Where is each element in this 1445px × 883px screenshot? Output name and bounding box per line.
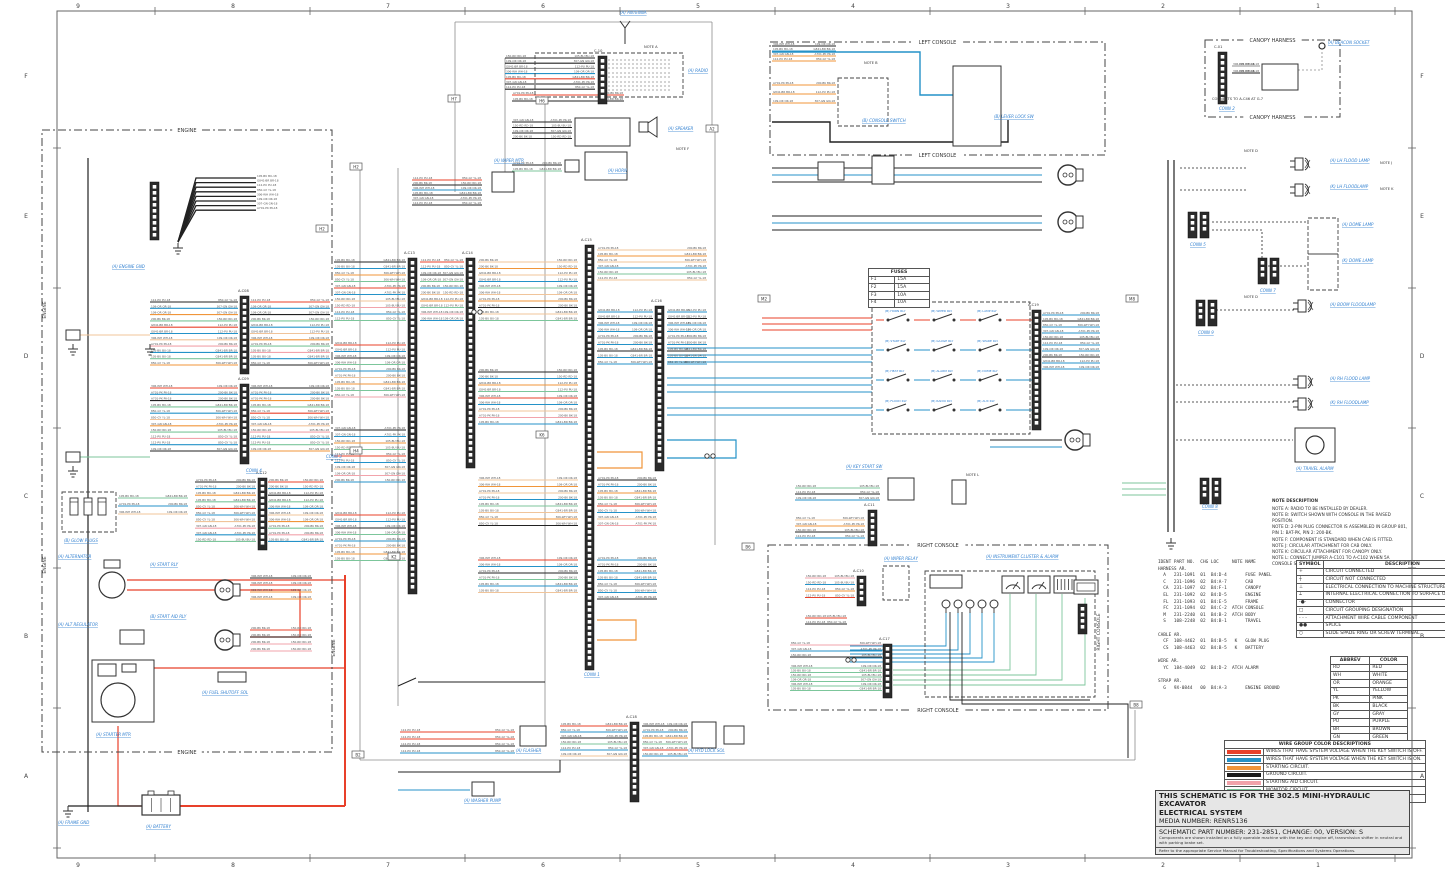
component-link[interactable]: CONN 2 bbox=[1219, 106, 1235, 111]
wire-label: 105-BU BU-18 bbox=[479, 420, 499, 424]
component-link[interactable]: (K) DOME LAMP bbox=[1342, 258, 1374, 263]
connector-pin bbox=[588, 524, 592, 528]
connector-pin bbox=[658, 345, 662, 349]
connector-pin bbox=[1191, 215, 1195, 219]
component-link[interactable]: (A) WIPER MTR bbox=[494, 158, 524, 163]
fuse-terminal bbox=[907, 319, 910, 322]
wire-label: 105-BU BU-18 bbox=[834, 581, 854, 585]
connector-pin bbox=[411, 567, 415, 571]
title-note-1: Components are shown installed on a full… bbox=[1159, 836, 1406, 846]
zone-tag-label: M2 bbox=[761, 297, 767, 302]
connector-pin bbox=[588, 596, 592, 600]
connector-pin bbox=[153, 209, 157, 213]
component-link[interactable]: (A) FUEL SHUTOFF SOL bbox=[202, 690, 248, 695]
wire-label: 200-BK BK-18 bbox=[558, 576, 577, 580]
wire-label: 200-BK BK-18 bbox=[251, 317, 270, 321]
wire-label: 150-RD RD-18 bbox=[557, 375, 577, 379]
wire-label: 150-RD RD-18 bbox=[806, 574, 826, 578]
wire-label: G841-BR BR-18 bbox=[1078, 317, 1100, 321]
connector-pin bbox=[411, 339, 415, 343]
ruler-number-top: 9 bbox=[76, 3, 80, 10]
wire-label: 307-GN GN-18 bbox=[335, 291, 356, 295]
connector-pin bbox=[1211, 309, 1215, 313]
wire-label: 307-GN GN-18 bbox=[335, 433, 356, 437]
indicator-lamp bbox=[966, 600, 974, 608]
connector-pin bbox=[658, 447, 662, 451]
wire-label: 850-GY YL-18 bbox=[575, 85, 594, 89]
glow-plug-cylinder bbox=[84, 498, 92, 515]
wire-label: 109-OR OR-18 bbox=[773, 99, 793, 103]
note-item: NOTE B: SWITCH SHOWN WITH CONSOLE IN THE… bbox=[1272, 512, 1410, 524]
connector-pin bbox=[411, 333, 415, 337]
wire-label: 105-BU BU-18 bbox=[598, 489, 618, 493]
wire-label: A701-PK PK-18 bbox=[335, 537, 356, 541]
component-link[interactable]: (A) WIPER RELAY bbox=[884, 556, 919, 561]
component-link[interactable]: (A) LH FLOOD LAMP bbox=[1330, 158, 1370, 163]
ruler-letter-right: E bbox=[1420, 213, 1424, 220]
component-link[interactable]: (A) ANTENNA bbox=[620, 10, 647, 15]
wire-label: 150-RD RD-18 bbox=[461, 181, 481, 185]
connector-pin bbox=[261, 511, 265, 515]
connector-pin bbox=[588, 518, 592, 522]
component-box bbox=[888, 478, 914, 500]
component-box bbox=[692, 722, 716, 748]
wire-label: G841-BR BR-18 bbox=[308, 348, 330, 352]
component-link[interactable]: (K) RH FLOODLAMP bbox=[1330, 400, 1369, 405]
wire-label: 200-BK BK-18 bbox=[386, 544, 405, 548]
wire-color-swatch bbox=[1227, 750, 1261, 754]
wire-label: G841-BR BR-18 bbox=[685, 354, 707, 358]
wire-label: 850-GY YL-18 bbox=[598, 582, 617, 586]
table-cell: SLIDE SPADE RING OR SCREW TERMINAL bbox=[1323, 630, 1445, 638]
connector-pin bbox=[588, 362, 592, 366]
wire-label: 112-PU PU-18 bbox=[310, 323, 329, 327]
component-box bbox=[1262, 64, 1298, 90]
wire-label: 307-GN GN-18 bbox=[309, 447, 330, 451]
component-link[interactable]: CONN 1 bbox=[584, 672, 600, 677]
component-link[interactable]: (A) BOOM FLOODLAMP bbox=[1330, 302, 1376, 307]
connector-pin bbox=[1081, 607, 1085, 611]
component-link[interactable]: (B) START AID RLY bbox=[150, 614, 187, 619]
component-link[interactable]: (A) ALT REGULATOR bbox=[58, 622, 98, 627]
wire-label: 850-GY YL-18 bbox=[218, 441, 237, 445]
ruler-number-top: 6 bbox=[541, 3, 545, 10]
wire-label: 200-BK BK-18 bbox=[479, 265, 498, 269]
wire-label: 307-GN GN-18 bbox=[815, 99, 836, 103]
component-link[interactable]: (A) STARTER MTR bbox=[96, 732, 131, 737]
wire-label: 306-WH WH-18 bbox=[384, 393, 406, 397]
connector-pin bbox=[1081, 625, 1085, 629]
connector-flange bbox=[1076, 216, 1083, 228]
wire-label: 850-GY YL-18 bbox=[1043, 323, 1062, 327]
wire-label: 109-OR OR-18 bbox=[385, 361, 405, 365]
wire-label: A701-PK PK-18 bbox=[861, 647, 882, 651]
table-cell: GRAY bbox=[1370, 711, 1408, 719]
connector-flange bbox=[233, 584, 240, 596]
connector-pin bbox=[871, 519, 875, 523]
wire-label: 105-BU BU-18 bbox=[385, 446, 405, 450]
component-link[interactable]: (K) LH FLOODLAMP bbox=[1330, 184, 1369, 189]
table-cell: ⊥ bbox=[1297, 584, 1324, 592]
wire-label: 105-BU BU-18 bbox=[257, 174, 277, 178]
component-link[interactable]: (A) INSTRUMENT CLUSTER & ALARM bbox=[986, 554, 1059, 559]
fuse-name: (B) HORN RLY bbox=[885, 309, 906, 313]
component-link[interactable]: (A) ALTERNATOR bbox=[58, 554, 92, 559]
wire-label: 850-GY YL-18 bbox=[386, 459, 405, 463]
wire-label: A701-PK PK-18 bbox=[385, 426, 406, 430]
wire-label: 112-PU PU-18 bbox=[444, 304, 463, 308]
connector-pin bbox=[658, 363, 662, 367]
connector-pin bbox=[153, 227, 157, 231]
wire-label: G841-BR BR-18 bbox=[421, 304, 443, 308]
connector-pin bbox=[633, 755, 637, 759]
wire-label: 109-OR OR-18 bbox=[557, 291, 577, 295]
wire-label: 850-GY YL-18 bbox=[827, 620, 846, 624]
component-link[interactable]: (A) SPEAKER bbox=[668, 126, 693, 131]
wire-label: G841-BR BR-18 bbox=[251, 330, 273, 334]
lamp-plug bbox=[1298, 376, 1306, 388]
wire-label: 112-PU PU-18 bbox=[251, 441, 270, 445]
wire-label: 200-BK BK-18 bbox=[816, 81, 835, 85]
region-label: LEFT CONSOLE bbox=[919, 40, 957, 46]
connector-pin bbox=[411, 357, 415, 361]
component-link[interactable]: (A) BEACON SOCKET bbox=[1328, 40, 1370, 45]
wire-label: 307-GN GN-18 bbox=[574, 59, 595, 63]
connector-pin bbox=[658, 393, 662, 397]
wire-label: 109-OR OR-18 bbox=[443, 310, 463, 314]
component-link[interactable]: (A) HORN bbox=[608, 168, 627, 173]
fuse-terminal bbox=[999, 409, 1002, 412]
connector-pin bbox=[588, 650, 592, 654]
wire-label: 306-WH WH-18 bbox=[234, 518, 256, 522]
note-item: NOTE F: COMPONENT IS STANDARD WHEN CAB I… bbox=[1272, 537, 1410, 543]
wire-label: 306-WH WH-18 bbox=[860, 641, 882, 645]
wire-label: 105-BU BU-18 bbox=[335, 258, 355, 262]
wire-label: 105-BU BU-18 bbox=[791, 687, 811, 691]
component-link[interactable]: (A) KEY START SW bbox=[846, 464, 883, 469]
wire-label: A701-PK PK-18 bbox=[773, 81, 794, 85]
wire-label: A701-PK PK-18 bbox=[151, 397, 172, 401]
wire-label: 850-GY YL-18 bbox=[598, 258, 617, 262]
connector-pin bbox=[1261, 261, 1265, 265]
connector-pin bbox=[1221, 61, 1225, 65]
wire-label: 105-BU BU-18 bbox=[834, 574, 854, 578]
table-cell: -●- bbox=[1297, 599, 1324, 607]
wire-label: 850-GY YL-18 bbox=[310, 441, 329, 445]
wire-label: 850-GY YL-18 bbox=[310, 298, 329, 302]
wire-label: 200-BK BK-18 bbox=[558, 569, 577, 573]
wire-label: 200-BK BK-18 bbox=[633, 334, 652, 338]
connector-pin bbox=[469, 363, 473, 367]
connector-pin bbox=[411, 561, 415, 565]
connector-pin bbox=[153, 197, 157, 201]
connector-pin bbox=[658, 423, 662, 427]
wire-label: 307-GN GN-18 bbox=[151, 422, 172, 426]
connector-pin bbox=[588, 398, 592, 402]
wire-label: 109-OR OR-18 bbox=[257, 197, 277, 201]
wire-label: 109-OR OR-18 bbox=[335, 465, 355, 469]
table-cell: GY bbox=[1331, 711, 1370, 719]
component-circle bbox=[1306, 436, 1324, 454]
connector-pin bbox=[588, 248, 592, 252]
connector-pin bbox=[871, 531, 875, 535]
wire-label: 200-BK BK-18 bbox=[1080, 311, 1099, 315]
region-label: CANOPY HARNESS bbox=[1249, 115, 1295, 121]
connector-pin bbox=[871, 525, 875, 529]
wire-label: 850-GY YL-18 bbox=[835, 594, 854, 598]
wire-label: A701-PK PK-18 bbox=[196, 478, 217, 482]
wire-label: 306-WH WH-18 bbox=[257, 192, 279, 196]
splice bbox=[852, 658, 856, 662]
wire-label: G841-BR BR-18 bbox=[685, 347, 707, 351]
wire-label: 850-GY YL-18 bbox=[462, 176, 481, 180]
component-link[interactable]: CONN 3 bbox=[326, 454, 342, 459]
connector-pin bbox=[469, 387, 473, 391]
component-link[interactable]: (A) DOME LAMP bbox=[1342, 222, 1374, 227]
wire-label: G841-BR BR-18 bbox=[335, 348, 357, 352]
connector-pin bbox=[1203, 215, 1207, 219]
connector-pin bbox=[886, 683, 890, 687]
connector-pin bbox=[633, 761, 637, 765]
wire-label: 200-BK BK-18 bbox=[269, 485, 288, 489]
connector-pin bbox=[886, 677, 890, 681]
connector-pin bbox=[469, 339, 473, 343]
wire-label: A701-PK PK-18 bbox=[479, 576, 500, 580]
connector-pin bbox=[411, 489, 415, 493]
table-cell: SPLICE bbox=[1323, 622, 1445, 630]
connector-pin bbox=[860, 585, 864, 589]
annotation-text: CONNECTS TO A-C46 AT G-7 bbox=[1212, 97, 1263, 101]
connector-pin bbox=[1203, 481, 1207, 485]
connector-pin bbox=[588, 656, 592, 660]
wire-label: 105-BU BU-18 bbox=[667, 752, 687, 756]
wire-label: 105-BU BU-18 bbox=[598, 347, 618, 351]
connector-pin bbox=[588, 638, 592, 642]
lamp-plug bbox=[1295, 184, 1303, 196]
region-label: RIGHT CONSOLE bbox=[917, 543, 958, 549]
wire-label: 307-GN GN-18 bbox=[217, 447, 238, 451]
component-link[interactable]: CONN 4 bbox=[246, 468, 262, 473]
table-row: WHWHITE bbox=[1331, 672, 1408, 680]
wire-label: 306-WH WH-18 bbox=[151, 384, 173, 388]
connector-pin bbox=[469, 321, 473, 325]
wire-label: A701-PK PK-18 bbox=[251, 397, 272, 401]
wire-label: A701-PK PK-18 bbox=[815, 52, 836, 56]
wire-label: 112-PU PU-18 bbox=[401, 728, 420, 732]
wire-label: 200-BK BK-18 bbox=[687, 341, 706, 345]
region-label-vertical: RIGHT CONSOLE bbox=[1096, 613, 1102, 650]
wire-label: G841-BR BR-18 bbox=[479, 381, 501, 385]
connector-pin bbox=[411, 513, 415, 517]
wire-label: G841-BR BR-18 bbox=[335, 518, 357, 522]
component-link[interactable]: (A) RH FLOOD LAMP bbox=[1330, 376, 1371, 381]
connector-pin bbox=[588, 482, 592, 486]
wire-label: A701-PK PK-18 bbox=[196, 485, 217, 489]
table-cell: CIRCUIT GROUPING DESIGNATION bbox=[1323, 607, 1445, 615]
table-row: F215A bbox=[869, 284, 930, 292]
connector-pin bbox=[588, 296, 592, 300]
indicator-lamp bbox=[978, 600, 986, 608]
wire-label: G841-BR BR-18 bbox=[335, 341, 357, 345]
component-link[interactable]: CONN 7 bbox=[1260, 288, 1276, 293]
table-cell bbox=[1225, 779, 1264, 787]
connector-pin bbox=[411, 525, 415, 529]
connector-pin bbox=[588, 530, 592, 534]
wire-label: A701-PK PK-18 bbox=[636, 522, 657, 526]
speaker-body bbox=[639, 122, 648, 132]
wire-label: 850-GY YL-18 bbox=[151, 361, 170, 365]
connector-pin bbox=[411, 585, 415, 589]
wire-label: 850-GY YL-18 bbox=[386, 317, 405, 321]
fuse-terminal bbox=[907, 349, 910, 352]
fuse-terminal bbox=[999, 349, 1002, 352]
wire-label: 306-WH WH-18 bbox=[251, 336, 273, 340]
connector-pin bbox=[1035, 421, 1039, 425]
wire-label: 112-PU PU-18 bbox=[806, 620, 825, 624]
connector-pin bbox=[1035, 373, 1039, 377]
connector-pin bbox=[411, 267, 415, 271]
table-cell: RED bbox=[1370, 664, 1408, 672]
table-cell: ORANGE bbox=[1370, 680, 1408, 688]
wire-label: A701-PK PK-18 bbox=[598, 483, 619, 487]
connector-pin bbox=[411, 261, 415, 265]
table-header-row: FUSES bbox=[869, 269, 930, 277]
wire-label: G841-BR BR-18 bbox=[479, 278, 501, 282]
wire-label: 150-RD RD-18 bbox=[806, 581, 826, 585]
wire-label: 850-GY YL-18 bbox=[257, 188, 276, 192]
wire-label: 200-BK BK-18 bbox=[558, 414, 577, 418]
ruler-number-bottom: 3 bbox=[1006, 862, 1010, 869]
wire-label: 307-GN GN-18 bbox=[257, 202, 278, 206]
table-cell: ATTACHMENT WIRE CABLE COMPONENT bbox=[1323, 615, 1445, 623]
wire-label: 112-PU PU-18 bbox=[335, 459, 354, 463]
connector-pin bbox=[243, 423, 247, 427]
wire-label: 850-GY YL-18 bbox=[791, 641, 810, 645]
connector-pin bbox=[153, 203, 157, 207]
wire-label: 307-GN GN-18 bbox=[413, 196, 434, 200]
table-row: ○SLIDE SPADE RING OR SCREW TERMINAL bbox=[1297, 630, 1445, 638]
connector-pin bbox=[243, 417, 247, 421]
wire-label: 112-PU PU-18 bbox=[558, 271, 577, 275]
connector-pin bbox=[411, 543, 415, 547]
component-link[interactable]: (A) WASHER PUMP bbox=[464, 798, 502, 803]
component-link[interactable]: (A) BATTERY bbox=[146, 824, 172, 829]
connector-pin bbox=[658, 399, 662, 403]
wire-label: A701-PK PK-18 bbox=[598, 246, 619, 250]
wire-label: A701-PK PK-18 bbox=[844, 522, 865, 526]
wire-label: 105-BU BU-18 bbox=[385, 439, 405, 443]
connector-pin bbox=[469, 447, 473, 451]
connector-pin bbox=[588, 578, 592, 582]
component-link[interactable]: (A) FLASHER bbox=[516, 748, 541, 753]
wire-label: 109-OR OR-18 bbox=[385, 524, 405, 528]
connector-pin bbox=[411, 285, 415, 289]
connector-pin bbox=[469, 357, 473, 361]
connector-pin bbox=[469, 279, 473, 283]
component-link[interactable]: (B) GLOW PLUGS bbox=[64, 538, 98, 543]
connector-pin bbox=[411, 291, 415, 295]
connector-pin bbox=[261, 493, 265, 497]
connector-pin bbox=[601, 89, 605, 93]
table-cell: YL bbox=[1331, 687, 1370, 695]
wire-label: 850-GY YL-18 bbox=[598, 360, 617, 364]
connector-pin bbox=[658, 357, 662, 361]
component-link[interactable]: CONN 8 bbox=[1202, 504, 1218, 509]
component-link[interactable]: (A) HYD LOCK SOL bbox=[688, 748, 725, 753]
component-link[interactable]: (A) RADIO bbox=[688, 68, 708, 73]
annotation-text: A-C14 bbox=[462, 251, 473, 255]
connector-pin bbox=[411, 309, 415, 313]
connector-pin bbox=[588, 440, 592, 444]
wire-label: 109-OR OR-18 bbox=[686, 321, 706, 325]
wire-label: G841-BR BR-18 bbox=[556, 509, 578, 513]
wire-label: 109-OR OR-18 bbox=[167, 510, 187, 514]
connector-pin bbox=[411, 465, 415, 469]
component-link[interactable]: (B) CONSOLE SWITCH bbox=[862, 118, 906, 123]
table-cell: CONNECTOR bbox=[1323, 599, 1445, 607]
component-link[interactable]: (A) TRAVEL ALARM bbox=[1296, 466, 1334, 471]
zone-tag-label: H6 bbox=[539, 99, 545, 104]
wire-label: 306-WH WH-18 bbox=[335, 354, 357, 358]
table-row: YLYELLOW bbox=[1331, 687, 1408, 695]
wire-label: 200-BK BK-18 bbox=[335, 478, 354, 482]
table-row: GROUND CIRCUIT. bbox=[1225, 771, 1426, 779]
wire-label: A701-PK PK-18 bbox=[668, 334, 689, 338]
wire-label: A701-PK PK-18 bbox=[335, 544, 356, 548]
wire-label: 306-WH WH-18 bbox=[773, 42, 795, 46]
wire-label: 307-GN GN-18 bbox=[598, 264, 619, 268]
wire-label: 109-OR OR-18 bbox=[796, 496, 816, 500]
wire-label: 150-RD RD-18 bbox=[309, 317, 329, 321]
wire-label: 306-WH WH-18 bbox=[234, 511, 256, 515]
wire-label: A701-PK PK-18 bbox=[636, 515, 657, 519]
connector-pin bbox=[469, 405, 473, 409]
wire-label: 112-PU PU-18 bbox=[806, 587, 825, 591]
connector-pin bbox=[1273, 267, 1277, 271]
connector-pin bbox=[243, 365, 247, 369]
wire-label: 150-RD RD-18 bbox=[196, 537, 216, 541]
component-box bbox=[952, 480, 966, 504]
connector-pin bbox=[588, 584, 592, 588]
connector-pin bbox=[469, 297, 473, 301]
component-link[interactable]: (A) START RLY bbox=[150, 562, 179, 567]
ruler-number-top: 7 bbox=[386, 3, 390, 10]
wire-label: A701-PK PK-18 bbox=[461, 196, 482, 200]
wire-label: 200-BK BK-18 bbox=[310, 342, 329, 346]
annotation-text: A-C18 bbox=[626, 715, 637, 719]
wire-label: G841-BR BR-18 bbox=[384, 258, 406, 262]
component-link[interactable]: (A) FRAME GND bbox=[58, 820, 89, 825]
component-link[interactable]: CONN 9 bbox=[1198, 330, 1214, 335]
component-link[interactable]: (B) LEVER LOCK SW bbox=[994, 114, 1035, 119]
annotation-text: NOTE D bbox=[1244, 149, 1258, 153]
table-row: PUPURPLE bbox=[1331, 718, 1408, 726]
table-row: F410A bbox=[869, 299, 930, 307]
wire-label: 150-RD RD-18 bbox=[796, 528, 816, 532]
connector-pin bbox=[658, 459, 662, 463]
connector-pin bbox=[469, 285, 473, 289]
connector-pin bbox=[588, 566, 592, 570]
connector-pin bbox=[469, 393, 473, 397]
wire-label: 112-PU PU-18 bbox=[304, 498, 323, 502]
wire-label: 306-WH WH-18 bbox=[556, 522, 578, 526]
component-link[interactable]: CONN 5 bbox=[1190, 242, 1206, 247]
ruler-letter-right: C bbox=[1420, 493, 1424, 500]
wire-label: 850-GY YL-18 bbox=[687, 276, 706, 280]
indicator-lamp bbox=[990, 600, 998, 608]
table-row: ORORANGE bbox=[1331, 680, 1408, 688]
component-link[interactable]: (A) ENGINE GND bbox=[112, 264, 145, 269]
